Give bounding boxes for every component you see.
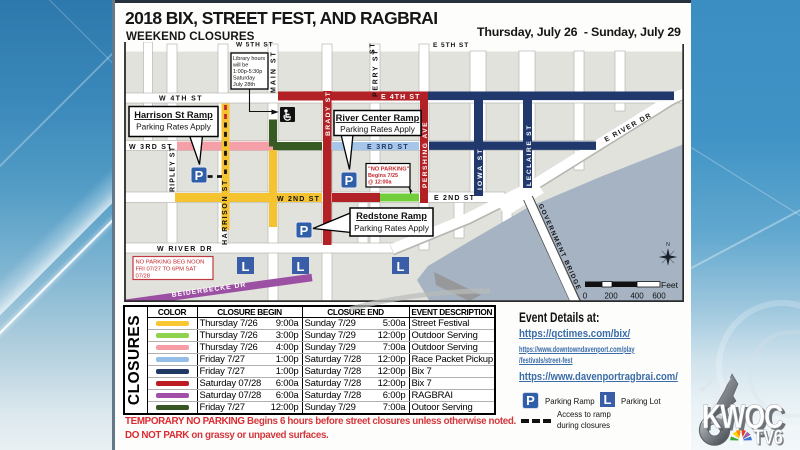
svg-text:Saturday: Saturday	[233, 76, 255, 82]
svg-text:L: L	[397, 259, 405, 274]
svg-text:L: L	[297, 259, 305, 274]
svg-text:N: N	[666, 242, 670, 248]
svg-text:200: 200	[604, 292, 618, 301]
svg-text:LECLAIRE ST: LECLAIRE ST	[526, 124, 533, 186]
svg-text:Harrison St Ramp: Harrison St Ramp	[134, 110, 213, 120]
svg-text:E 4TH ST: E 4TH ST	[381, 94, 421, 101]
svg-text:PERRY ST: PERRY ST	[373, 49, 380, 97]
svg-text:P: P	[345, 173, 354, 188]
svg-text:Parking Rates Apply: Parking Rates Apply	[354, 223, 430, 233]
svg-text:IOWA ST: IOWA ST	[477, 148, 484, 190]
svg-text:HARRISON ST: HARRISON ST	[222, 179, 229, 245]
svg-text:600: 600	[652, 292, 666, 301]
svg-text:E 2ND ST: E 2ND ST	[434, 195, 475, 202]
svg-text:MAIN ST: MAIN ST	[271, 50, 278, 93]
svg-text:W 5TH ST: W 5TH ST	[236, 42, 274, 49]
svg-text:E 5TH ST: E 5TH ST	[433, 42, 469, 49]
svg-text:"NO PARKING": "NO PARKING"	[368, 167, 410, 173]
svg-text:PERSHING AVE: PERSHING AVE	[422, 121, 429, 188]
svg-text:BRADY ST: BRADY ST	[325, 91, 332, 136]
svg-text:Redstone Ramp: Redstone Ramp	[356, 211, 427, 221]
svg-text:@ 12:00a: @ 12:00a	[368, 180, 393, 186]
svg-text:NO PARKING BEG NOON: NO PARKING BEG NOON	[136, 260, 205, 266]
svg-text:0: 0	[583, 292, 588, 301]
svg-text:Parking Rates Apply: Parking Rates Apply	[340, 124, 416, 134]
svg-text:07/28: 07/28	[136, 274, 151, 280]
svg-text:will be: will be	[232, 63, 248, 69]
svg-text:Begins 7/25: Begins 7/25	[368, 173, 398, 179]
svg-text:River Center Ramp: River Center Ramp	[336, 113, 420, 123]
svg-text:E 3RD ST: E 3RD ST	[367, 144, 409, 151]
svg-text:W RIVER DR: W RIVER DR	[157, 246, 213, 253]
svg-text:TV6: TV6	[753, 426, 783, 449]
svg-text:L: L	[242, 259, 250, 274]
svg-text:FRI 07/27 TO 6PM SAT: FRI 07/27 TO 6PM SAT	[136, 267, 197, 273]
svg-text:P: P	[300, 223, 309, 238]
svg-text:P: P	[195, 168, 204, 183]
svg-text:July 28th: July 28th	[233, 82, 255, 88]
svg-text:W 2ND ST: W 2ND ST	[277, 196, 320, 203]
svg-text:RIPLEY ST: RIPLEY ST	[170, 146, 177, 192]
svg-text:Feet: Feet	[661, 280, 679, 290]
svg-text:W 4TH ST: W 4TH ST	[159, 96, 203, 103]
svg-text:W 3RD ST: W 3RD ST	[129, 144, 173, 151]
svg-text:Library hours: Library hours	[233, 56, 265, 62]
svg-text:Parking Rates Apply: Parking Rates Apply	[136, 122, 212, 132]
svg-text:1:00p-5:30p: 1:00p-5:30p	[233, 69, 262, 75]
svg-text:400: 400	[630, 292, 644, 301]
